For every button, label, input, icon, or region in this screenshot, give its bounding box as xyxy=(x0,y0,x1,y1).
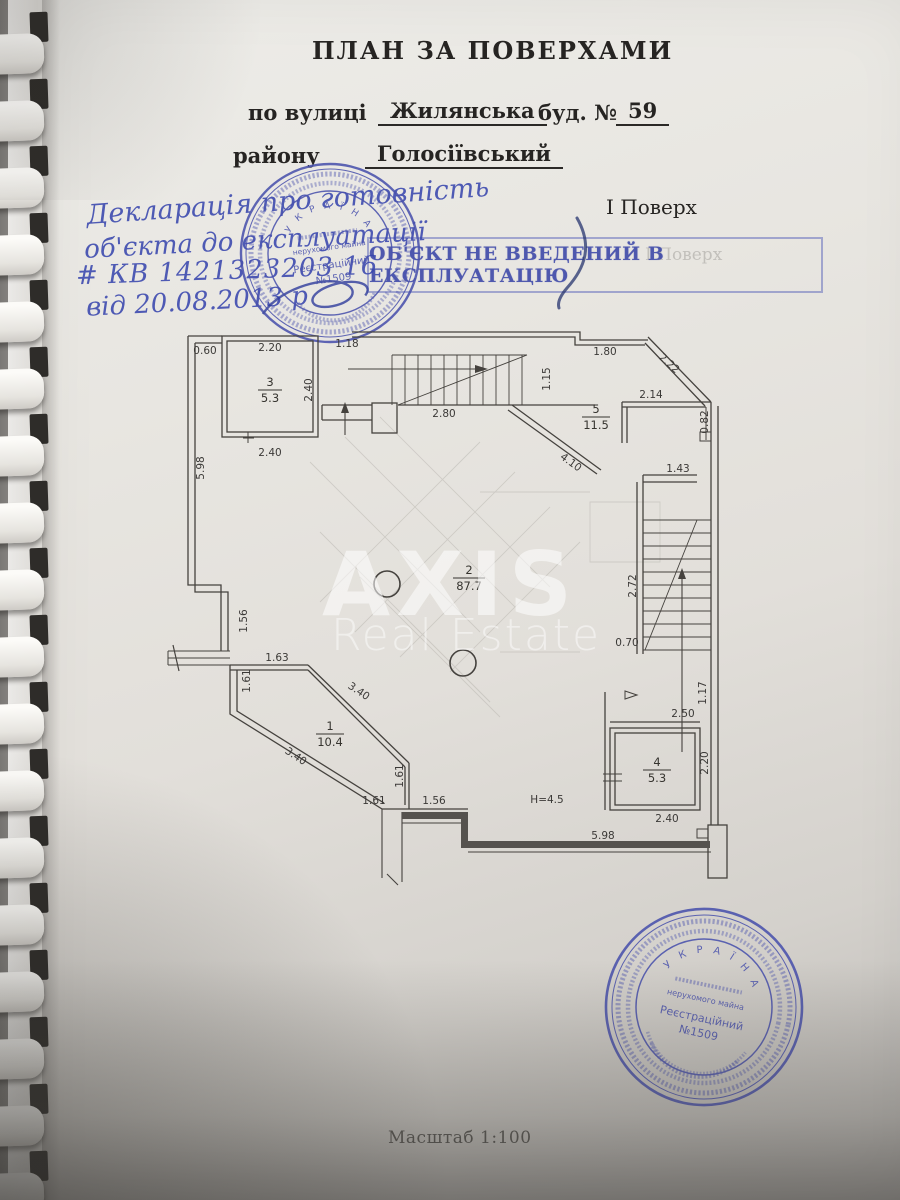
svg-text:2.80: 2.80 xyxy=(432,408,455,420)
svg-text:1.61: 1.61 xyxy=(362,795,385,807)
svg-text:5.98: 5.98 xyxy=(195,456,207,479)
svg-text:2.20: 2.20 xyxy=(699,751,711,774)
binding-tooth xyxy=(0,100,45,142)
street-label: по вулиці xyxy=(248,100,367,125)
binding-tooth xyxy=(0,904,45,946)
binding-tooth xyxy=(0,636,45,678)
svg-text:0.82: 0.82 xyxy=(699,410,711,433)
svg-text:3: 3 xyxy=(266,375,273,389)
svg-text:1.43: 1.43 xyxy=(666,463,689,475)
svg-text:2.22: 2.22 xyxy=(656,351,681,376)
floor-plan: 3 5.3 5 11.5 2 87.7 1 10.4 4 5.3 0.60 2.… xyxy=(160,322,735,897)
column-circle xyxy=(450,650,476,676)
svg-text:1.17: 1.17 xyxy=(697,681,709,704)
binding-tooth xyxy=(0,1172,45,1200)
stair-arrow-right xyxy=(475,365,488,373)
entry-arrow-up xyxy=(341,402,349,413)
building-value: 59 xyxy=(616,98,669,126)
svg-text:2.14: 2.14 xyxy=(639,389,663,401)
binding-tooth xyxy=(0,301,45,343)
binding-tooth xyxy=(0,703,45,745)
column-circle xyxy=(374,571,400,597)
svg-text:1.56: 1.56 xyxy=(238,609,250,633)
scanned-document-photo: ПЛАН ЗА ПОВЕРХАМИ по вулиці Жилянська бу… xyxy=(0,0,900,1200)
binding-tooth xyxy=(0,368,45,410)
svg-text:1.63: 1.63 xyxy=(265,652,288,664)
binding-tooth xyxy=(0,435,45,477)
binding-tooth xyxy=(0,569,45,611)
svg-text:3.40: 3.40 xyxy=(283,745,309,768)
svg-text:2.50: 2.50 xyxy=(671,708,694,720)
svg-text:0.60: 0.60 xyxy=(193,345,216,357)
svg-text:87.7: 87.7 xyxy=(456,579,482,593)
svg-text:5: 5 xyxy=(592,402,599,416)
binding-tooth xyxy=(0,837,45,879)
svg-text:3.40: 3.40 xyxy=(346,680,372,703)
svg-text:4: 4 xyxy=(653,755,660,769)
svg-text:1.80: 1.80 xyxy=(593,346,616,358)
dimension-labels: 0.60 2.20 1.18 1.80 2.40 2.40 5.98 1.15 … xyxy=(193,338,711,842)
floor-label: І Поверх xyxy=(606,195,697,219)
svg-text:5.3: 5.3 xyxy=(648,771,666,785)
ghost-lines xyxy=(310,417,660,717)
building-label: буд. № xyxy=(538,100,617,125)
binding-tooth xyxy=(0,33,45,75)
svg-text:2.20: 2.20 xyxy=(258,342,281,354)
svg-text:2: 2 xyxy=(465,563,472,577)
svg-text:1.61: 1.61 xyxy=(241,669,253,692)
svg-text:2.40: 2.40 xyxy=(258,447,281,459)
svg-text:1.61: 1.61 xyxy=(394,764,406,787)
svg-text:0.70: 0.70 xyxy=(615,637,638,649)
svg-text:1.15: 1.15 xyxy=(541,367,553,390)
svg-text:2.40: 2.40 xyxy=(303,378,315,401)
svg-text:5.98: 5.98 xyxy=(591,830,614,842)
binding-tooth xyxy=(0,167,45,209)
svg-text:1.18: 1.18 xyxy=(335,338,358,350)
svg-text:1: 1 xyxy=(326,719,333,733)
ceiling-height-label: Н=4.5 xyxy=(530,794,563,806)
binding-tooth xyxy=(0,1105,45,1147)
stamp-reg-label: Реєстраційний xyxy=(293,254,371,277)
svg-text:1.56: 1.56 xyxy=(422,795,446,807)
binding-tooth xyxy=(0,502,45,544)
stamp-small-text: нерухомого майна xyxy=(292,238,366,257)
pen-stroke xyxy=(535,210,615,315)
stair-arrow-up xyxy=(678,568,686,579)
svg-text:2.40: 2.40 xyxy=(655,813,678,825)
scale-caption: Масштаб 1:100 xyxy=(388,1128,532,1148)
comb-binding xyxy=(0,0,80,1200)
stairs-top xyxy=(348,355,527,405)
svg-text:2.72: 2.72 xyxy=(627,574,639,597)
binding-tooth xyxy=(0,971,45,1013)
street-value: Жилянська xyxy=(378,98,547,126)
binding-tooth xyxy=(0,770,45,812)
binding-tooth xyxy=(0,1038,45,1080)
svg-text:5.3: 5.3 xyxy=(261,391,279,405)
page-title: ПЛАН ЗА ПОВЕРХАМИ xyxy=(312,36,673,65)
svg-text:10.4: 10.4 xyxy=(317,735,343,749)
door-arrow xyxy=(625,691,637,699)
round-stamp-bottom: У К Р А Ї Н А нерухомого майна Реєстраці… xyxy=(578,881,829,1132)
svg-text:11.5: 11.5 xyxy=(583,418,609,432)
binding-tooth xyxy=(0,234,45,276)
